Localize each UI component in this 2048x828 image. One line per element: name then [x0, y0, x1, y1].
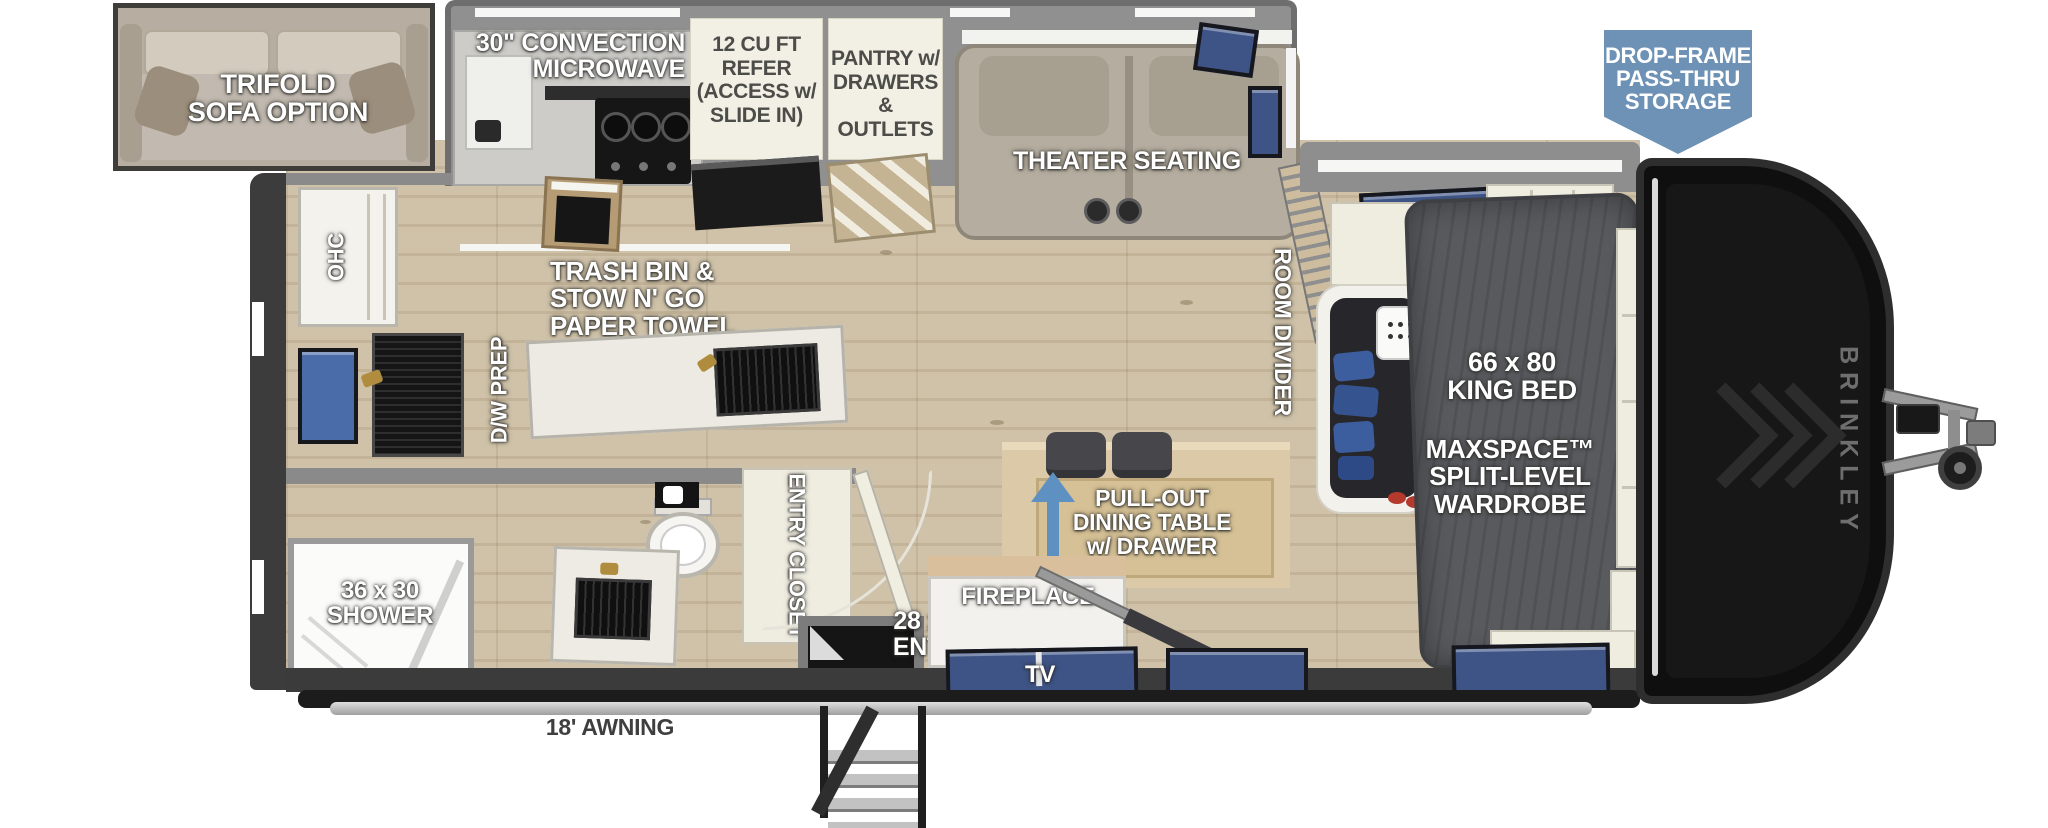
- slide-window-strip: [1135, 8, 1255, 17]
- slide-window: [1248, 86, 1282, 158]
- cooktop: [595, 98, 691, 184]
- room-divider-label: ROOM DIVIDER: [1271, 248, 1295, 416]
- kitchen-sink: [713, 343, 820, 416]
- battery-box: [1896, 404, 1940, 434]
- floor-knot: [880, 250, 892, 255]
- burner: [661, 112, 691, 142]
- theater-label: THEATER SEATING: [1013, 148, 1241, 174]
- floorplan-canvas: 30" CONVECTION MICROWAVE 12 CU FT REFER …: [0, 0, 2048, 828]
- jack-wheel-hub: [1954, 462, 1966, 474]
- king-bed-label: 66 x 80 KING BED: [1447, 348, 1577, 405]
- dining-chair: [1112, 432, 1172, 478]
- cupholder: [1116, 198, 1142, 224]
- shower-label: 36 x 30 SHOWER: [327, 578, 433, 628]
- stair-rail: [918, 706, 926, 828]
- stair-step: [828, 798, 918, 812]
- pantry-label: PANTRY w/ DRAWERS & OUTLETS: [828, 18, 943, 160]
- slide-window-strip: [950, 8, 1010, 17]
- awning-label: 18' AWNING: [540, 714, 680, 741]
- trash-bin: [555, 196, 611, 245]
- burner: [601, 112, 631, 142]
- trash-cabinet: [541, 176, 623, 252]
- dw-prep-label: D/W PREP: [487, 337, 510, 443]
- knob: [639, 162, 648, 171]
- shoes: [1388, 492, 1406, 504]
- knob: [611, 162, 620, 171]
- knob: [667, 162, 676, 171]
- galley-counter: [526, 325, 849, 440]
- floor-knot: [990, 420, 1004, 425]
- sofa-arm: [120, 24, 142, 162]
- refrigerator: [691, 156, 823, 231]
- left-wall-window: [252, 560, 264, 614]
- hanging-clothes: [1338, 456, 1374, 480]
- pantry-shelves: [826, 153, 936, 243]
- microwave-label: 30" CONVECTION MICROWAVE: [455, 30, 685, 83]
- slide-edge-slit: [1286, 48, 1296, 148]
- slide-window-strip: [475, 8, 680, 17]
- floor-knot: [640, 520, 651, 524]
- cabinet-top-strip: [551, 181, 617, 192]
- tv-label: TV: [1025, 662, 1055, 687]
- tp-roll: [663, 486, 683, 504]
- pullout-arrow-head: [1031, 472, 1075, 502]
- slide-window: [1193, 22, 1259, 78]
- bath-sink: [574, 578, 652, 641]
- seat-divider: [1125, 56, 1133, 206]
- refer-label: 12 CU FT REFER (ACCESS w/ SLIDE IN): [690, 18, 823, 160]
- floor-knot: [1180, 300, 1193, 305]
- vent-dot: [1388, 322, 1393, 327]
- stair-step: [828, 822, 918, 828]
- sofa-option-inset: TRIFOLD SOFA OPTION: [113, 3, 435, 171]
- vent-dot: [1398, 322, 1403, 327]
- cabinet-door-line: [383, 194, 386, 320]
- cupholder: [1084, 198, 1110, 224]
- burner: [631, 112, 661, 142]
- wardrobe-label: MAXSPACE™ SPLIT-LEVEL WARDROBE: [1426, 436, 1595, 518]
- left-wall-window: [252, 302, 264, 356]
- coffee-maker: [475, 120, 501, 142]
- vent-dot: [1398, 334, 1403, 339]
- brand-label: BRINKLEY: [1834, 346, 1863, 538]
- bath-top-wall: [286, 173, 451, 185]
- bath-vanity: [550, 546, 680, 666]
- dinette-label: PULL-OUT DINING TABLE w/ DRAWER: [1073, 486, 1231, 558]
- awning-tube: [330, 702, 1592, 715]
- bath-dark-vanity: [372, 333, 464, 457]
- cap-seam: [1652, 178, 1658, 676]
- entry-stairs: [820, 706, 926, 828]
- bedroom-top-window-strip: [1318, 160, 1622, 172]
- hanging-clothes: [1333, 421, 1375, 454]
- storage-banner-label: DROP-FRAME PASS-THRU STORAGE: [1605, 44, 1751, 113]
- gold-faucet: [600, 562, 618, 575]
- slide-edge-strip: [460, 244, 790, 251]
- trash-label: TRASH BIN & STOW N' GO PAPER TOWEL: [550, 258, 735, 340]
- vent-dot: [1388, 334, 1393, 339]
- fireplace-halfwall: [928, 556, 1126, 578]
- ohc-label: OHC: [324, 233, 347, 281]
- hitch-coupler: [1966, 420, 1996, 446]
- bath-mirror: [298, 348, 358, 444]
- hanging-clothes: [1333, 384, 1379, 418]
- sofa-option-label: TRIFOLD SOFA OPTION: [188, 70, 368, 127]
- hanging-clothes: [1333, 350, 1376, 382]
- headrest: [979, 56, 1109, 136]
- cabinet-door-line: [367, 194, 370, 320]
